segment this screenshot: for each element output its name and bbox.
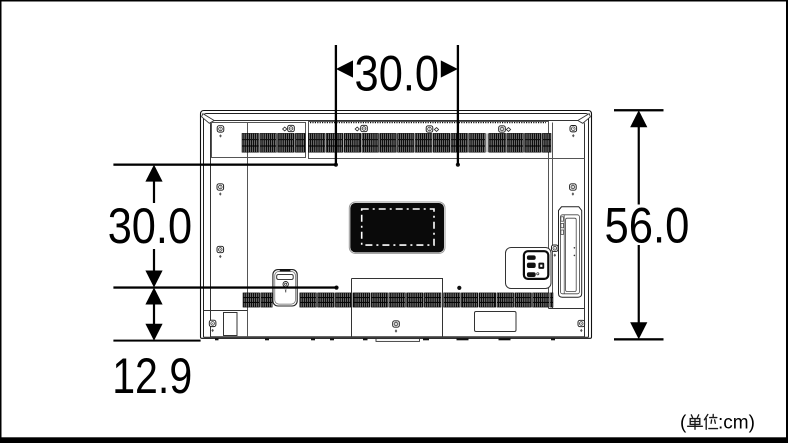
svg-text:(: (: [680, 413, 687, 434]
svg-text:30.0: 30.0: [355, 45, 440, 102]
svg-text::cm): :cm): [718, 413, 755, 434]
svg-text:12.9: 12.9: [112, 347, 192, 404]
svg-text:56.0: 56.0: [604, 196, 689, 253]
svg-text:30.0: 30.0: [108, 197, 192, 254]
